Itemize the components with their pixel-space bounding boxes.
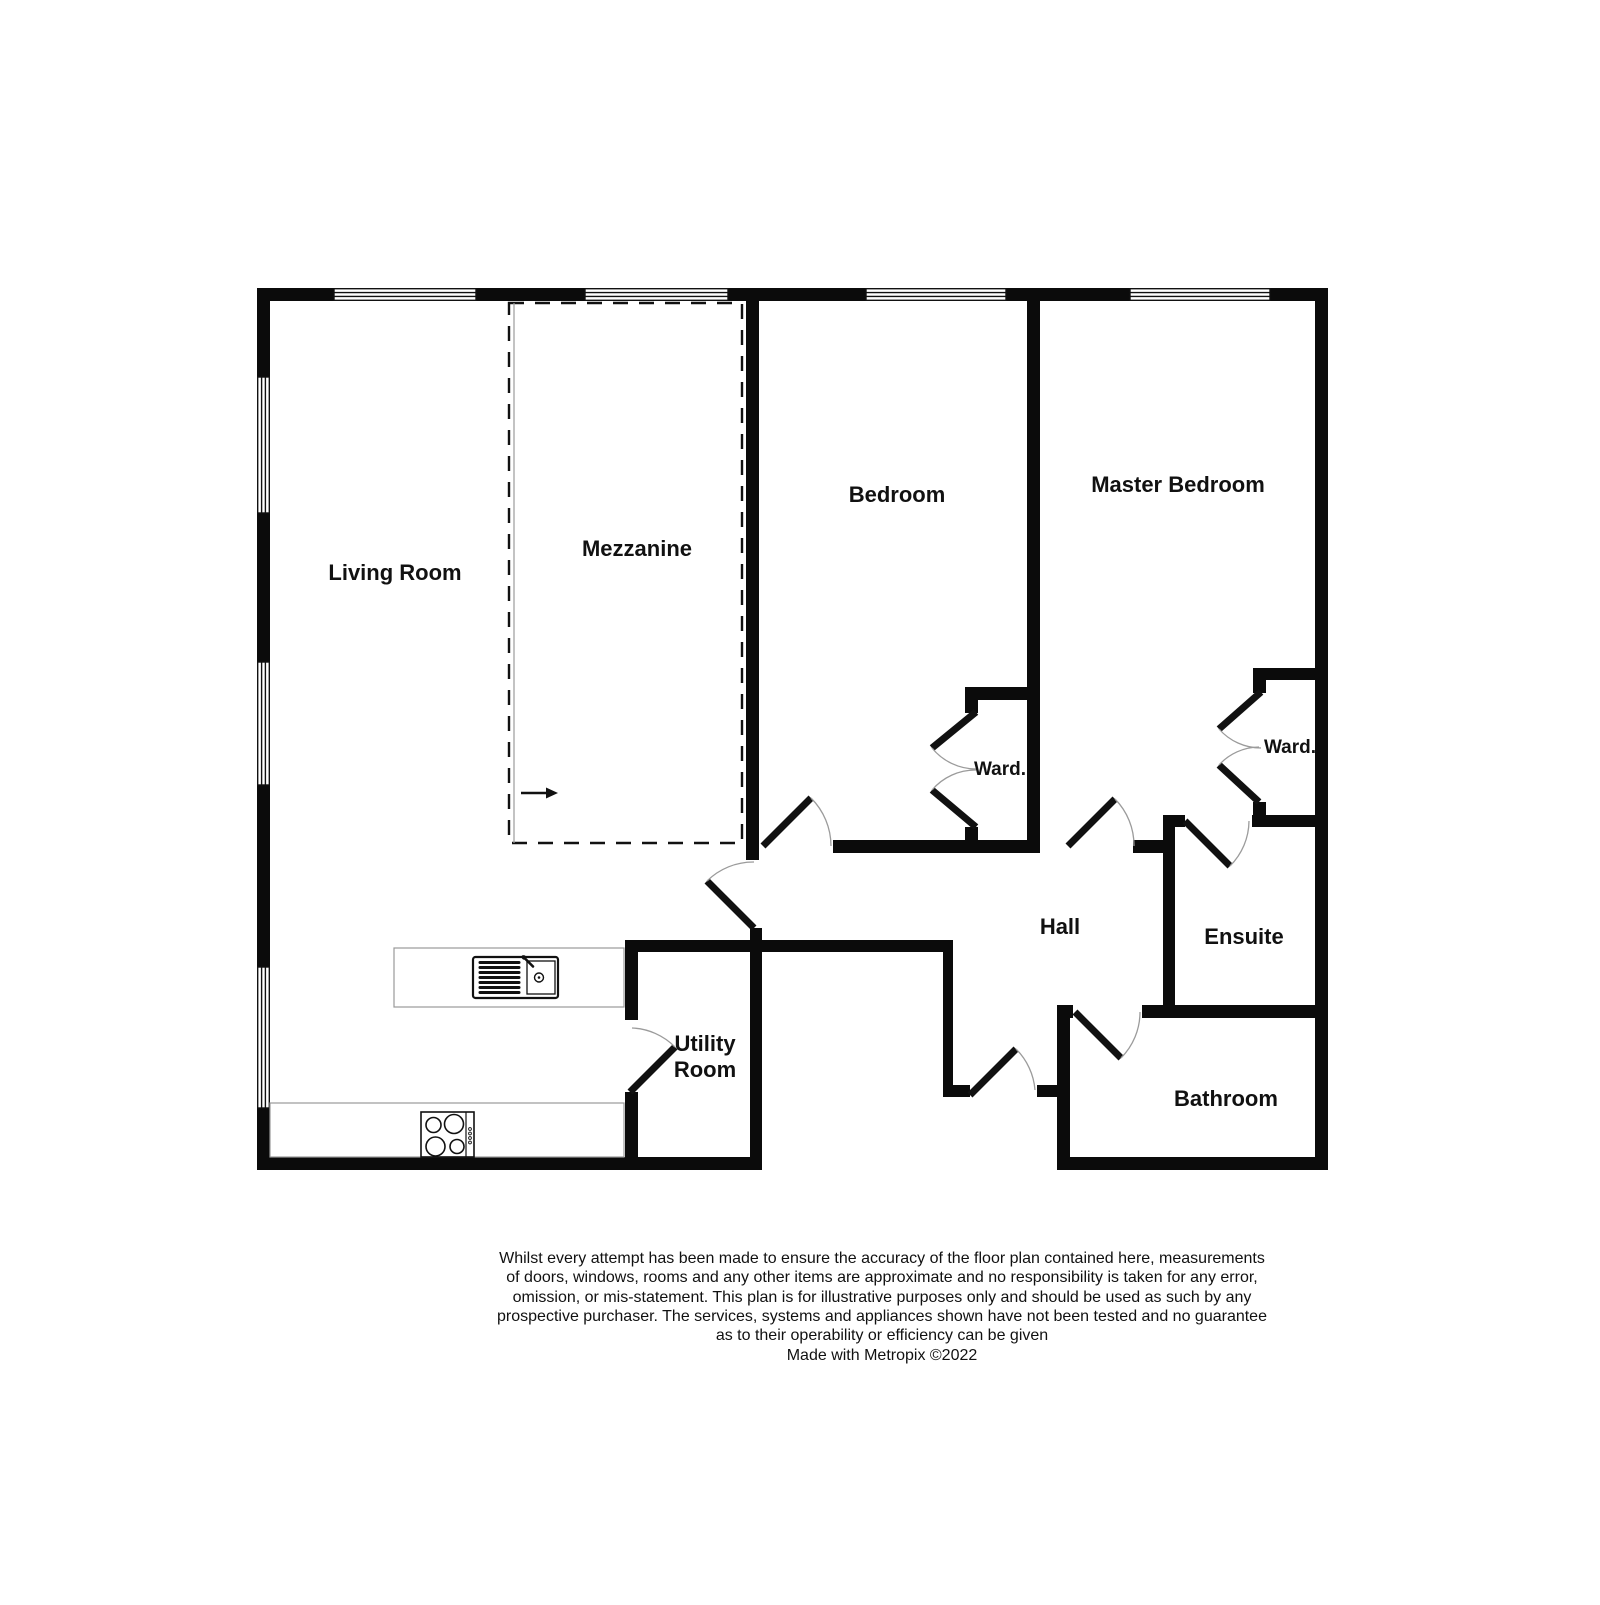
window-top-4 [1130,289,1270,301]
wall-bottom-bathroom [1057,1157,1328,1170]
window-left-3 [258,967,270,1108]
wall-hall-west [943,952,953,1097]
disclaimer-line-5: as to their operability or efficiency ca… [716,1327,1048,1344]
label-master-bedroom: Master Bedroom [1091,472,1265,497]
label-living-room: Living Room [328,560,461,585]
wall-bedroom-ward-stub-bottom [965,827,978,840]
door-bedroom [763,798,831,846]
wall-bedroom-ward-stub-top [965,700,978,713]
credit-line: Made with Metropix ©2022 [787,1347,978,1364]
door-entrance [970,1049,1035,1095]
door-bathroom [1075,1012,1140,1058]
wall-entrance-nub-right [1037,1085,1057,1097]
door-utility [630,1028,675,1092]
label-bathroom: Bathroom [1174,1086,1278,1111]
wall-bottom-kitchen [257,1157,762,1170]
label-hall: Hall [1040,914,1080,939]
label-utility-line1: Utility [674,1031,736,1056]
mezzanine-outline [509,303,742,843]
disclaimer-line-3: omission, or mis-statement. This plan is… [513,1289,1252,1306]
wall-utility-left-upper [625,952,638,1020]
wall-master-ward-top [1253,668,1328,680]
window-top-3 [866,289,1006,301]
wall-hall-top [833,840,1040,853]
door-living-to-hall [707,862,754,928]
disclaimer-line-2: of doors, windows, rooms and any other i… [506,1269,1257,1286]
wall-bedroom-master-divider [1027,301,1040,853]
label-mezzanine: Mezzanine [582,536,692,561]
door-ensuite [1185,821,1249,866]
wall-entrance-nub-left [943,1085,970,1097]
window-left-2 [258,662,270,785]
stairs-direction-arrow-icon [521,788,558,799]
label-ensuite: Ensuite [1204,924,1283,949]
door-master-bedroom [1068,799,1134,846]
wall-utility-right [750,928,762,1170]
wall-bedroom-ward-top [965,687,1040,700]
door-bedroom-wardrobe [932,712,976,827]
label-utility-line2: Room [674,1057,736,1082]
label-ward-master: Ward. [1264,737,1316,758]
outer-walls [257,288,1328,1170]
wall-utility-left-lower [625,1092,638,1157]
door-master-wardrobe [1219,692,1261,802]
wall-bathroom-top [1142,1005,1328,1018]
wall-master-ward-stub-bottom [1253,802,1266,815]
floorplan-page: Living Room Mezzanine Bedroom Master Bed… [0,0,1600,1600]
floorplan-canvas: Living Room Mezzanine Bedroom Master Bed… [0,0,1600,1600]
wall-living-bedroom-divider [746,301,759,860]
wall-bathroom-left [1057,1005,1070,1170]
disclaimer-text: Whilst every attempt has been made to en… [497,1250,1267,1364]
window-left-1 [258,377,270,513]
disclaimer-line-4: prospective purchaser. The services, sys… [497,1308,1267,1325]
wall-master-ward-bottom [1252,815,1328,827]
window-top-2 [585,289,728,301]
wall-hall-southwest [625,940,953,952]
label-bedroom: Bedroom [849,482,946,507]
kitchen-fixtures [270,948,624,1157]
disclaimer-line-1: Whilst every attempt has been made to en… [499,1250,1265,1267]
window-top-1 [334,289,476,301]
wall-right [1315,288,1328,1170]
wall-ensuite-left [1163,815,1175,1010]
mezzanine-dashed-border [509,303,742,843]
label-ward-bedroom: Ward. [974,759,1026,780]
